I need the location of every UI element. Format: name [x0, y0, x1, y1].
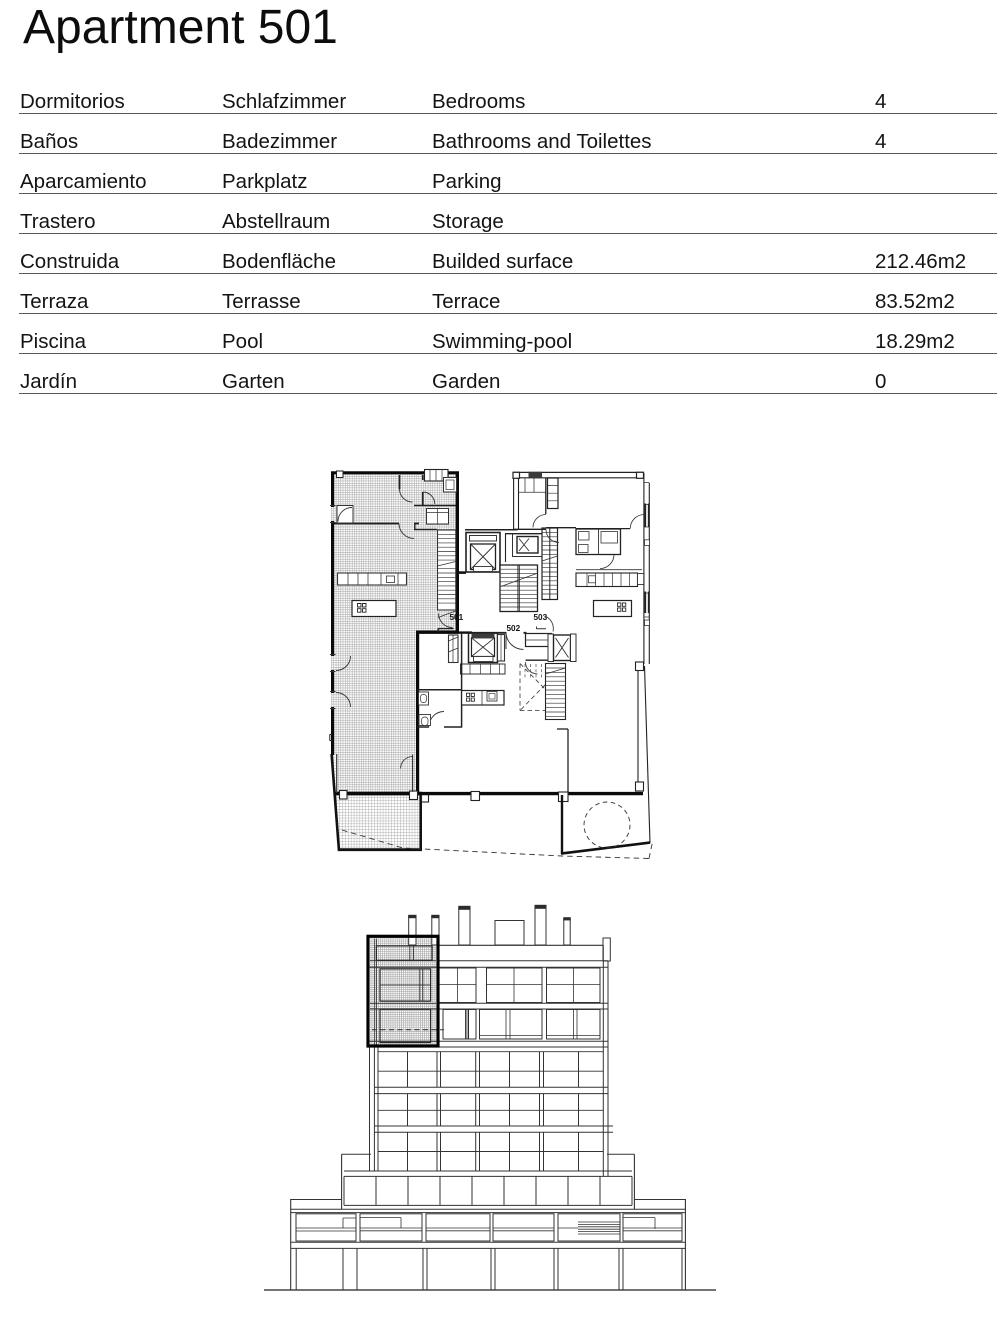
- svg-text:503: 503: [534, 613, 548, 622]
- svg-text:502: 502: [507, 624, 521, 633]
- svg-text:501: 501: [450, 613, 464, 622]
